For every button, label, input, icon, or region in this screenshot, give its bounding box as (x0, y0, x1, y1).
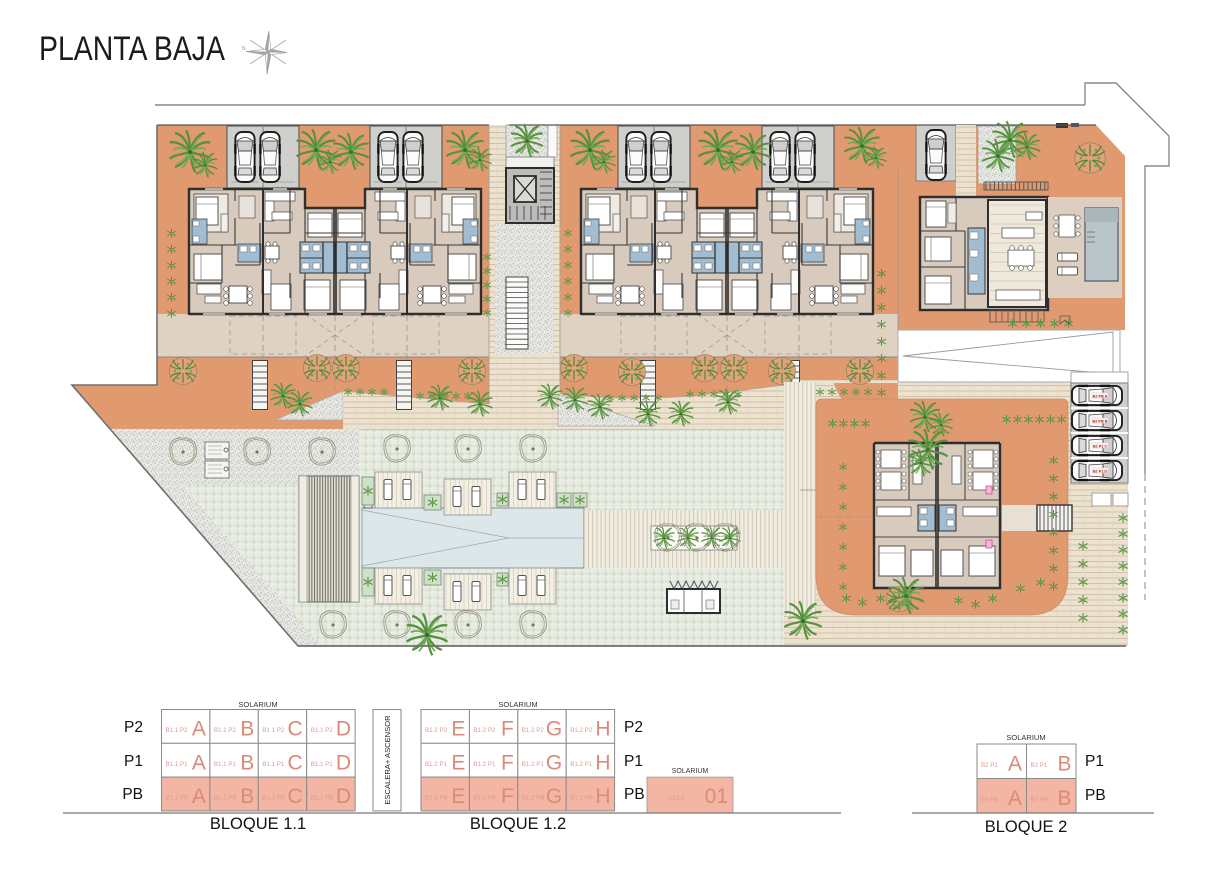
svg-text:BLOQUE 2: BLOQUE 2 (985, 818, 1068, 836)
svg-text:B1.1 P2: B1.1 P2 (166, 727, 189, 734)
svg-text:B1.2 P2: B1.2 P2 (425, 727, 448, 734)
svg-text:D: D (336, 785, 351, 808)
svg-text:C: C (288, 718, 303, 741)
svg-text:A: A (1008, 753, 1022, 776)
svg-text:H: H (595, 751, 610, 774)
svg-text:C: C (288, 785, 303, 808)
svg-text:G: G (546, 785, 562, 808)
svg-text:A: A (192, 751, 206, 774)
svg-text:N: N (242, 46, 246, 52)
svg-text:A: A (1008, 787, 1022, 810)
svg-text:01: 01 (705, 785, 728, 808)
svg-text:H: H (595, 785, 610, 808)
svg-text:B: B (1057, 753, 1071, 776)
svg-text:B1.2 P1: B1.2 P1 (425, 761, 448, 768)
svg-text:PB: PB (1085, 787, 1106, 804)
svg-text:B2 P1: B2 P1 (1031, 762, 1048, 769)
svg-text:B2 PB: B2 PB (981, 797, 999, 804)
svg-text:B1.2 P2: B1.2 P2 (570, 727, 593, 734)
svg-text:B2 PB B: B2 PB B (1093, 419, 1108, 423)
svg-text:BLOQUE 1.2: BLOQUE 1.2 (470, 815, 566, 833)
svg-text:A: A (192, 785, 206, 808)
svg-text:G: G (546, 751, 562, 774)
svg-text:B1.1 P2: B1.1 P2 (262, 727, 285, 734)
svg-text:VILLA: VILLA (668, 795, 686, 802)
svg-text:B2 P1 C: B2 P1 C (1093, 444, 1108, 448)
svg-text:B2 PB A: B2 PB A (1093, 394, 1108, 398)
svg-text:SOLARIUM: SOLARIUM (672, 768, 709, 775)
svg-text:B: B (240, 718, 254, 741)
svg-text:B1.1 P2: B1.1 P2 (214, 727, 237, 734)
svg-text:F: F (501, 751, 514, 774)
svg-text:B2 PB: B2 PB (1031, 797, 1049, 804)
svg-text:BLOQUE 1.1: BLOQUE 1.1 (210, 815, 306, 833)
svg-text:B1.2 P1: B1.2 P1 (522, 761, 545, 768)
svg-text:E: E (451, 718, 465, 741)
svg-text:B2 P1: B2 P1 (981, 762, 998, 769)
svg-text:B1.1 P1: B1.1 P1 (214, 761, 237, 768)
svg-text:D: D (336, 751, 351, 774)
svg-text:P2: P2 (124, 719, 143, 736)
svg-text:PLANTA BAJA: PLANTA BAJA (39, 30, 225, 68)
svg-text:A: A (192, 718, 206, 741)
svg-text:P1: P1 (624, 753, 643, 770)
svg-text:F: F (501, 785, 514, 808)
svg-text:B1.2 PB: B1.2 PB (570, 795, 593, 802)
svg-text:P2: P2 (624, 719, 643, 736)
svg-text:C: C (288, 751, 303, 774)
svg-text:P1: P1 (1085, 753, 1104, 770)
svg-text:B1.1 PB: B1.1 PB (262, 795, 285, 802)
svg-text:B: B (240, 751, 254, 774)
svg-text:B: B (1057, 787, 1071, 810)
svg-text:B1.1 P1: B1.1 P1 (262, 761, 285, 768)
svg-text:B1.1 PB: B1.1 PB (214, 795, 237, 802)
svg-text:G: G (546, 718, 562, 741)
svg-text:B1.2 P1: B1.2 P1 (570, 761, 593, 768)
svg-text:B1.2 P1: B1.2 P1 (473, 761, 496, 768)
svg-text:B1.2 PB: B1.2 PB (473, 795, 496, 802)
svg-text:PB: PB (624, 786, 645, 803)
svg-text:B1.1 P1: B1.1 P1 (311, 761, 334, 768)
svg-text:B1.2 P2: B1.2 P2 (473, 727, 496, 734)
svg-text:B1.1 PB: B1.1 PB (166, 795, 189, 802)
svg-text:B1.1 P1: B1.1 P1 (166, 761, 189, 768)
svg-text:D: D (336, 718, 351, 741)
svg-text:H: H (595, 718, 610, 741)
svg-text:B1.1 P2: B1.1 P2 (311, 727, 334, 734)
svg-text:B2 P1 D: B2 P1 D (1093, 469, 1108, 473)
svg-text:SOLARIUM: SOLARIUM (238, 700, 277, 709)
svg-text:B: B (240, 785, 254, 808)
svg-text:P1: P1 (124, 753, 143, 770)
svg-text:B1.2 PB: B1.2 PB (522, 795, 545, 802)
svg-text:B1.1 PB: B1.1 PB (311, 795, 334, 802)
svg-text:B1.2 P2: B1.2 P2 (522, 727, 545, 734)
svg-text:E: E (451, 785, 465, 808)
svg-text:SOLARIUM: SOLARIUM (498, 700, 537, 709)
svg-text:B1.2 PB: B1.2 PB (425, 795, 448, 802)
svg-text:ESCALERA+ ASCENSOR: ESCALERA+ ASCENSOR (383, 715, 392, 805)
svg-text:E: E (451, 751, 465, 774)
svg-text:F: F (501, 718, 514, 741)
svg-text:PB: PB (122, 786, 143, 803)
svg-text:SOLARIUM: SOLARIUM (1006, 733, 1045, 742)
